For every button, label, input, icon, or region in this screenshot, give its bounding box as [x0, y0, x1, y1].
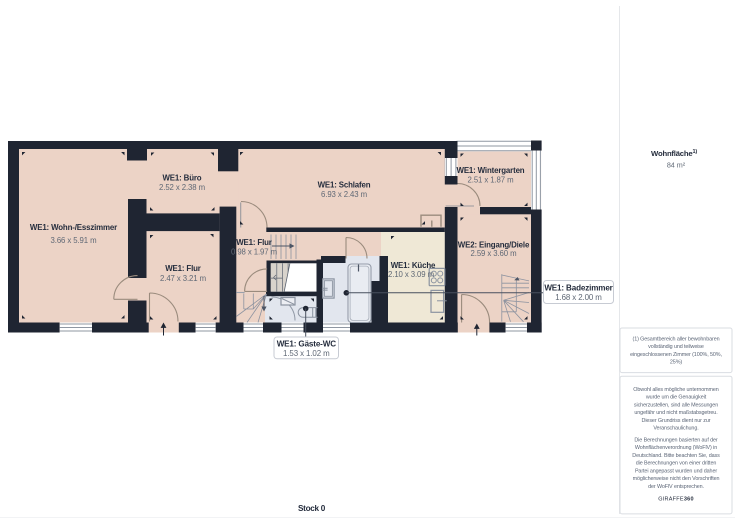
- svg-text:(1) Gesamtbereich aller bewohn: (1) Gesamtbereich aller bewohnbaren: [633, 337, 720, 343]
- svg-text:eingeschlossenen Zimmer (100%,: eingeschlossenen Zimmer (100%, 50%,: [630, 352, 722, 358]
- svg-text:Stock 0: Stock 0: [298, 504, 326, 513]
- svg-text:2.52 x 2.38 m: 2.52 x 2.38 m: [159, 183, 205, 192]
- svg-text:25%): 25%): [670, 360, 682, 366]
- svg-text:Partei angepasst wurden und da: Partei angepasst wurden und daher: [635, 469, 717, 475]
- svg-text:WE1: Flur: WE1: Flur: [236, 238, 272, 247]
- svg-text:Deutschland. Bitte beachten Si: Deutschland. Bitte beachten Sie, dass: [632, 453, 720, 459]
- svg-text:0.98 x 1.97 m: 0.98 x 1.97 m: [231, 248, 277, 257]
- svg-text:WE1: Flur: WE1: Flur: [165, 264, 201, 273]
- svg-text:WE1: Schlafen: WE1: Schlafen: [318, 181, 371, 190]
- svg-text:vollständig und teilweise: vollständig und teilweise: [648, 344, 704, 350]
- svg-text:Veranschaulichung.: Veranschaulichung.: [653, 426, 698, 432]
- svg-text:WE1: Badezimmer: WE1: Badezimmer: [544, 283, 613, 292]
- svg-text:WE1: Wintergarten: WE1: Wintergarten: [457, 166, 525, 175]
- svg-text:Dieser Grundriss dient nur zur: Dieser Grundriss dient nur zur: [642, 418, 711, 424]
- svg-text:2.10 x 3.09 m: 2.10 x 3.09 m: [388, 270, 434, 279]
- svg-text:6.93 x 2.43 m: 6.93 x 2.43 m: [321, 190, 367, 199]
- svg-text:ungefähr und nicht maßstabsget: ungefähr und nicht maßstabsgetreu.: [634, 410, 717, 416]
- svg-text:wurde um die Genauigkeit: wurde um die Genauigkeit: [645, 395, 707, 401]
- svg-text:möglicherweise nicht den Vorsc: möglicherweise nicht den Vorschriften: [633, 476, 720, 482]
- svg-text:2.51 x 1.87 m: 2.51 x 1.87 m: [468, 176, 514, 185]
- svg-text:GIRAFFE360: GIRAFFE360: [658, 497, 694, 503]
- svg-text:2.47 x 3.21 m: 2.47 x 3.21 m: [160, 274, 206, 283]
- svg-text:WE1: Gäste-WC: WE1: Gäste-WC: [277, 340, 337, 349]
- svg-text:die Berechnungen von einer dri: die Berechnungen von einer dritten: [636, 461, 717, 467]
- svg-text:2.59 x 3.60 m: 2.59 x 3.60 m: [471, 249, 517, 258]
- svg-text:Wohnflächenverordnung (WoFlV): Wohnflächenverordnung (WoFlV) in: [635, 445, 717, 451]
- svg-text:der WoFlV entsprechen.: der WoFlV entsprechen.: [648, 484, 704, 490]
- svg-text:WE1: Büro: WE1: Büro: [163, 174, 202, 183]
- svg-text:1.68 x 2.00 m: 1.68 x 2.00 m: [555, 293, 602, 302]
- svg-text:WE1: Küche: WE1: Küche: [391, 261, 436, 270]
- svg-text:Die Berechnungen basierten auf: Die Berechnungen basierten auf der: [634, 438, 718, 444]
- svg-text:WE1: Wohn-/Esszimmer: WE1: Wohn-/Esszimmer: [30, 223, 117, 232]
- svg-text:Wohnfläche1): Wohnfläche1): [651, 149, 697, 158]
- svg-text:WE2: Eingang/Diele: WE2: Eingang/Diele: [458, 240, 530, 249]
- svg-text:1.53 x 1.02 m: 1.53 x 1.02 m: [283, 349, 330, 358]
- svg-text:Obwohl alles mögliche unternom: Obwohl alles mögliche unternommen: [633, 387, 718, 393]
- svg-text:3.66 x 5.91 m: 3.66 x 5.91 m: [51, 236, 97, 245]
- svg-text:84 m²: 84 m²: [667, 161, 686, 170]
- svg-text:sicherzustellen, sind alle Mes: sicherzustellen, sind alle Messungen: [634, 402, 718, 408]
